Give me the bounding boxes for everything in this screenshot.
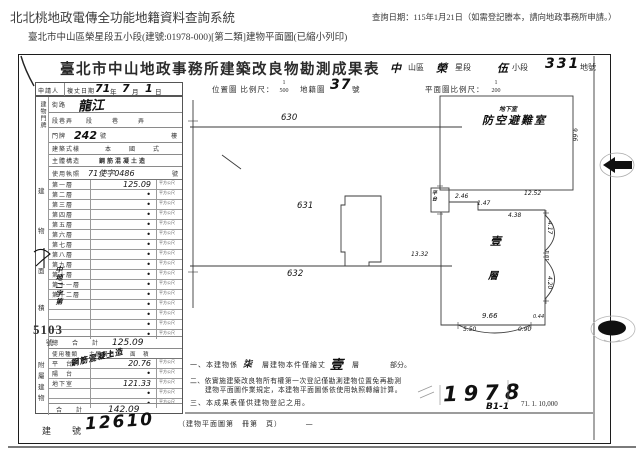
basement-dim-bottom: 12.52: [524, 190, 541, 197]
survey-day-hand: 1: [145, 82, 153, 95]
floor-row: •平方公尺: [49, 319, 182, 329]
survey-date-label: 複丈日期: [67, 86, 95, 95]
structure-row: 主體構造 鋼筋混凝土造: [49, 154, 182, 166]
building-form-table: 建物門牌 建 物 面 積 附 屬 建 物 街路 龍江 段巷弄 段 巷 弄 門牌 …: [35, 96, 183, 414]
query-date: 查詢日期：115年1月21日（如需登記謄本，請向地政事務所申請。）: [372, 11, 616, 23]
style-label: 建築式樣: [49, 144, 80, 153]
receipt-stamp-suffix: 號: [46, 338, 53, 348]
structure-label: 主體構造: [49, 156, 80, 165]
floor-row: 第五層•平方公尺: [49, 219, 182, 229]
floor-row: 第七層•平方公尺: [49, 239, 182, 249]
style-value: 本 國 式: [102, 144, 165, 153]
row-value: •: [91, 369, 156, 378]
district-label: 山區: [408, 62, 424, 73]
cadastral-unit: 號: [352, 84, 360, 95]
floor-row: 第二層•平方公尺: [49, 189, 182, 199]
floor-area-side-label-4: 積: [38, 302, 45, 312]
floor-total-row: 總 合 計 125.09: [49, 336, 182, 348]
row-value: •: [91, 260, 156, 269]
lane-lane-label: 巷: [109, 116, 119, 125]
basement-dim-right: 9.66: [571, 128, 578, 141]
parcel-label-bottom: 632: [287, 269, 303, 279]
floor-row: 第六層•平方公尺: [49, 229, 182, 239]
column-divider: [64, 83, 65, 96]
row-unit: 平方公尺: [156, 300, 182, 309]
row-unit: 平方公尺: [156, 310, 182, 319]
row-label: 第二層: [49, 190, 91, 199]
plan-scale-numerator: 1: [489, 80, 503, 86]
floor-dim-top3: 4.38: [508, 212, 521, 219]
row-value: •: [91, 320, 156, 329]
basement-large-label: 防空避難室: [482, 112, 547, 128]
row-label: 第五層: [49, 220, 91, 229]
floor-dim-right1: 4.17: [546, 221, 553, 234]
subsection-label: 小段: [512, 62, 528, 73]
document-subtitle: 臺北市中山區榮星段五小段(建號:01978-000)[第二類]建物平面圖(已縮小…: [28, 29, 347, 43]
row-value: •: [91, 250, 156, 259]
building-no-label: 建 號: [42, 424, 87, 437]
document-title: 臺北市中山地政事務所建築改良物勘測成果表: [60, 58, 380, 79]
row-unit: 平方公尺: [156, 280, 182, 289]
door-label: 門牌: [49, 131, 66, 140]
row-value: •: [91, 190, 156, 199]
floor-suffix-label: 樓: [168, 131, 178, 140]
row-unit: 平方公尺: [156, 290, 182, 299]
footer-hand-code: B1-1: [486, 402, 509, 412]
platform-label: 平台: [431, 190, 436, 212]
floor-area-side-label-3: 面: [38, 265, 45, 275]
scanned-survey-page: 北北桃地政電傳全功能地籍資料查詢系統 查詢日期：115年1月21日（如需登記謄本…: [0, 0, 640, 452]
year-label: 年: [110, 86, 117, 96]
note-3: 三、本成果表僅供建物登記之用。: [190, 398, 310, 408]
row-unit: 平方公尺: [156, 260, 182, 269]
survey-header-box: 申請人 複丈日期 71 年 7 月 1 日: [35, 82, 183, 96]
row-label: 第六層: [49, 230, 91, 239]
attached-total-label: 合 計: [53, 405, 86, 414]
attached-side-label-1: 附: [38, 359, 45, 369]
row-label: 第一層: [49, 180, 91, 189]
lane-alley-label: 弄: [135, 116, 145, 125]
floor-dim-bottom2: 5.50: [463, 326, 476, 333]
address-section: 街路 龍江 段巷弄 段 巷 弄 門牌 242 號 樓: [49, 97, 182, 142]
footer-hand-number: 1978: [443, 380, 526, 407]
location-scale-numerator: 1: [277, 80, 291, 86]
license-label: 使用執照: [49, 169, 80, 178]
floor-dim-bottom3: 0.90: [518, 326, 531, 333]
attached-col-area: 面 積: [127, 350, 150, 358]
floor-row: 第一層125.09平方公尺: [49, 179, 182, 189]
parcel-label-top: 630: [281, 113, 297, 123]
row-label: 第三層: [49, 200, 91, 209]
receipt-stamp-number: 5103: [33, 322, 63, 338]
lane-seg-label: 段: [83, 116, 93, 125]
month-label: 月: [132, 86, 139, 96]
row-value: •: [91, 210, 156, 219]
floor-row: •平方公尺: [49, 299, 182, 309]
note-2-line2: 建物平面圖作業規定，本建物平面圖係依使用執照轉繪計算。: [205, 384, 402, 394]
floor-room-label-2: 層: [488, 267, 498, 282]
floor-row: •平方公尺: [49, 309, 182, 319]
address-group-label: 建物門牌: [38, 101, 47, 139]
row-unit: 平方公尺: [156, 379, 182, 388]
door-unit-label: 號: [97, 131, 107, 140]
row-label: 陽 台: [49, 369, 91, 378]
parcel-number-hand: 331: [545, 56, 580, 72]
row-label: [49, 389, 91, 398]
plan-scale-denominator: 200: [489, 88, 503, 94]
floor-area-side-label-2: 物: [38, 225, 45, 235]
row-unit: 平方公尺: [156, 210, 182, 219]
floor-row: 第十一層•平方公尺: [49, 279, 182, 289]
plan-book-label: （建物平面圖第 冊第 頁）: [178, 419, 282, 429]
row-unit: 平方公尺: [156, 270, 182, 279]
floor-dim-top2: 1.47: [477, 200, 490, 207]
floor-row: 第十層•平方公尺: [49, 269, 182, 279]
plan-scale-label: 平面圖比例尺：: [425, 84, 485, 95]
row-label: 第七層: [49, 240, 91, 249]
license-unit: 號: [169, 169, 179, 178]
subsection-hand: 伍: [497, 60, 508, 76]
note-1-hand-floors: 柒: [243, 357, 252, 370]
footer-print-code: 71. 1. 10,000: [521, 400, 558, 408]
applicant-label: 申請人: [38, 86, 59, 95]
location-map-scale-label: 位置圖 比例尺：: [212, 84, 274, 95]
row-value: •: [91, 270, 156, 279]
parcel-label-mid: 631: [297, 201, 313, 211]
survey-year-hand: 71: [95, 82, 110, 95]
note-1-mid2: 層: [352, 360, 359, 370]
note-1-mid: 層建物本件僅繪丈: [262, 360, 326, 370]
floor-row: 第四層•平方公尺: [49, 209, 182, 219]
floor-dim-left: 13.32: [411, 251, 428, 258]
attached-row: 陽 台•平方公尺: [49, 368, 182, 378]
row-value: •: [91, 389, 156, 398]
row-value: •: [91, 240, 156, 249]
row-value: •: [91, 310, 156, 319]
row-label: 地下室: [49, 379, 91, 388]
parcel-label: 地號: [580, 62, 596, 73]
attached-row: •平方公尺: [49, 388, 182, 398]
row-value: 121.33: [91, 379, 156, 388]
note-1-prefix: 一、本建物係: [190, 360, 238, 370]
floor-rows: 第一層125.09平方公尺第二層•平方公尺第三層•平方公尺第四層•平方公尺第五層…: [49, 179, 182, 336]
floor-total-label: 總 合 計: [49, 338, 102, 347]
row-value: •: [91, 290, 156, 299]
row-value: •: [91, 220, 156, 229]
row-unit: 平方公尺: [156, 190, 182, 199]
row-unit: 平方公尺: [156, 220, 182, 229]
cadastral-map-label: 地籍圖: [300, 84, 326, 95]
row-label: 第四層: [49, 210, 91, 219]
floor-row: 第八層•平方公尺: [49, 249, 182, 259]
note-1-suffix: 部分。: [390, 360, 411, 370]
row-label: 第八層: [49, 250, 91, 259]
structure-value: 鋼筋混凝土造: [96, 156, 147, 165]
district-hand: 中: [390, 60, 401, 76]
row-unit: 平方公尺: [156, 369, 182, 378]
license-row: 使用執照 71使字0486 號: [49, 166, 182, 179]
floor-row: 第十二層•平方公尺: [49, 289, 182, 299]
row-value: •: [91, 280, 156, 289]
row-unit: 平方公尺: [156, 230, 182, 239]
note-1-hand-level: 壹: [330, 354, 343, 373]
attached-side-label-2: 屬: [38, 370, 45, 380]
street-value-hand: 龍江: [78, 94, 105, 114]
row-value: •: [91, 230, 156, 239]
floor-dim-top1: 2.46: [455, 193, 468, 200]
row-value: 125.09: [91, 180, 156, 189]
floor-room-label-1: 壹: [490, 233, 501, 249]
row-unit: 平方公尺: [156, 180, 182, 189]
floor-dim-right4: 0.44: [533, 314, 544, 320]
row-value: •: [91, 300, 156, 309]
floor-row: 第九層•平方公尺: [49, 259, 182, 269]
lane-label: 段巷弄: [49, 116, 73, 125]
plan-book-hand: 一: [305, 420, 312, 430]
attached-row: 地下室121.33平方公尺: [49, 378, 182, 388]
attached-side-label-3: 建: [38, 381, 45, 391]
row-unit: 平方公尺: [156, 389, 182, 398]
row-unit: 平方公尺: [156, 320, 182, 329]
row-unit: 平方公尺: [156, 359, 182, 368]
row-unit: 平方公尺: [156, 200, 182, 209]
cadastral-number-hand: 37: [330, 77, 351, 93]
day-label: 日: [155, 86, 162, 96]
row-unit: 平方公尺: [156, 240, 182, 249]
floor-dim-bottom: 9.66: [482, 312, 498, 320]
section-label: 星段: [455, 62, 471, 73]
floor-dim-right3: 4.20: [546, 276, 553, 289]
row-value: •: [91, 200, 156, 209]
floor-row: 第三層•平方公尺: [49, 199, 182, 209]
attached-side-label-4: 物: [38, 392, 45, 402]
location-scale-denominator: 500: [277, 88, 291, 94]
floor-area-side-label-1: 建: [38, 185, 45, 195]
attached-rows: 平 台20.76平方公尺陽 台•平方公尺地下室121.33平方公尺•平方公尺•平…: [49, 358, 182, 403]
receipt-stamp-text: 中地二字第: [54, 266, 64, 328]
floor-dim-right2: 1.01: [543, 250, 549, 261]
floor-total-value: 125.09: [112, 338, 144, 348]
section-hand: 榮: [436, 60, 447, 76]
survey-month-hand: 7: [122, 82, 130, 95]
door-value-hand: 242: [74, 129, 97, 142]
row-unit: 平方公尺: [156, 250, 182, 259]
street-label: 街路: [49, 100, 66, 109]
license-value-hand: 71使字0486: [88, 168, 135, 179]
system-title: 北北桃地政電傳全功能地籍資料查詢系統: [10, 7, 235, 26]
style-row: 建築式樣 本 國 式: [49, 142, 182, 154]
